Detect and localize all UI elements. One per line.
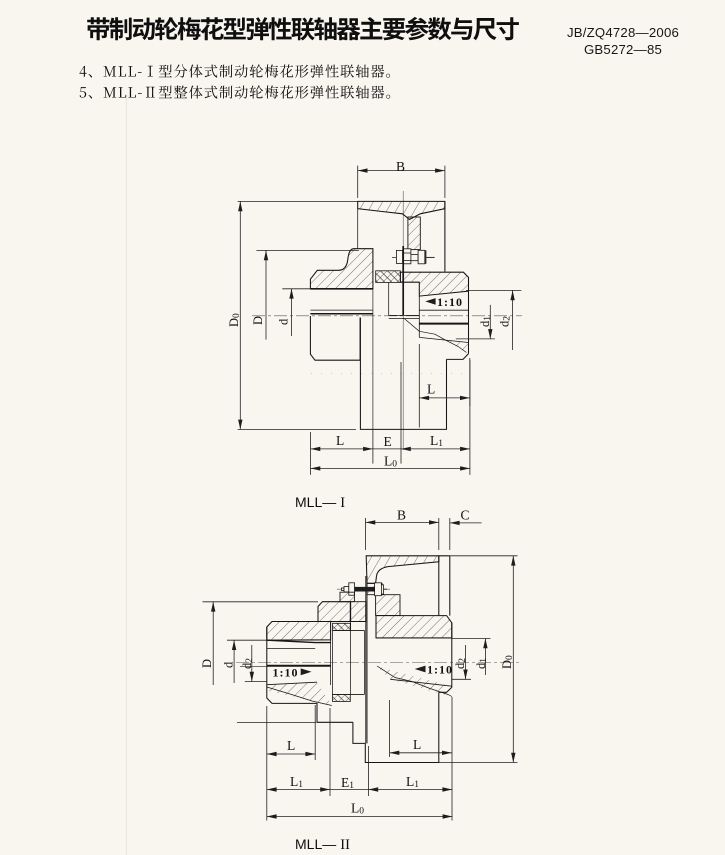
svg-text:L: L	[413, 737, 421, 752]
svg-text:d2: d2	[453, 658, 468, 669]
svg-text:B: B	[397, 508, 406, 523]
svg-text:L1: L1	[406, 774, 419, 790]
svg-text:L1: L1	[430, 433, 443, 449]
svg-text:d: d	[277, 318, 291, 325]
svg-text:D: D	[200, 659, 214, 668]
svg-text:L1: L1	[290, 774, 303, 790]
svg-text:L0: L0	[351, 801, 364, 817]
svg-text:d2: d2	[498, 316, 513, 327]
svg-text:1:10: 1:10	[437, 295, 463, 309]
svg-text:L: L	[336, 433, 344, 448]
svg-text:C: C	[461, 508, 470, 523]
svg-text:d1: d1	[474, 658, 489, 669]
svg-text:D0: D0	[500, 655, 515, 669]
svg-text:L: L	[427, 382, 435, 397]
svg-text:d: d	[222, 661, 236, 668]
svg-text:1:10: 1:10	[273, 666, 299, 680]
svg-text:E1: E1	[341, 775, 354, 791]
svg-text:1:10: 1:10	[427, 663, 453, 677]
svg-text:B: B	[396, 159, 405, 174]
svg-text:D0: D0	[227, 313, 242, 327]
svg-text:d2: d2	[240, 658, 255, 669]
svg-text:E: E	[384, 434, 392, 449]
svg-text:d1: d1	[478, 316, 493, 327]
svg-text:L: L	[287, 738, 295, 753]
svg-text:L0: L0	[384, 454, 397, 470]
svg-text:D: D	[251, 316, 265, 325]
